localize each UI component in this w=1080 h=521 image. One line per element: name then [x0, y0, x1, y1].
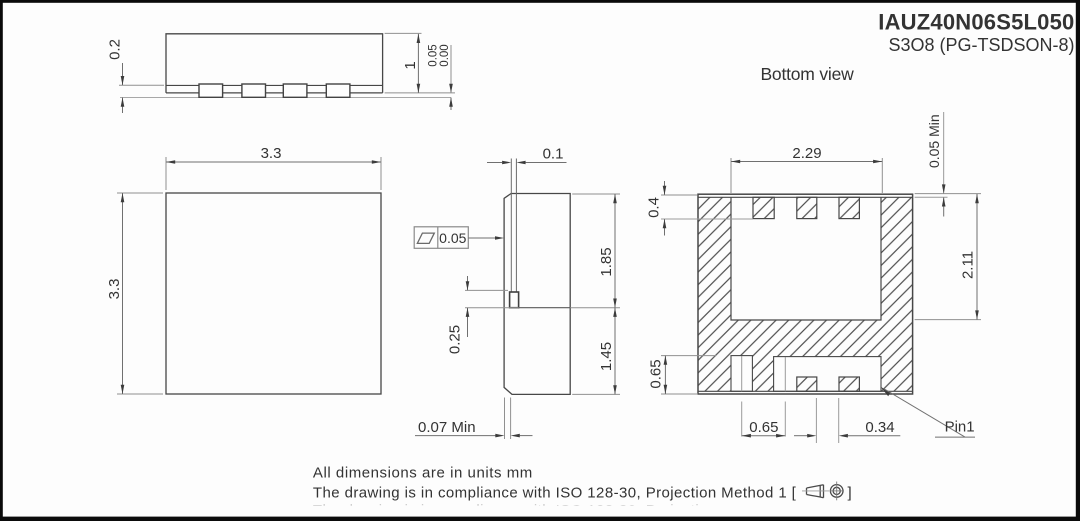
svg-text:0.2: 0.2 — [107, 39, 124, 60]
svg-text:1.45: 1.45 — [598, 342, 615, 371]
svg-text:3.3: 3.3 — [261, 145, 282, 162]
svg-text:1.85: 1.85 — [598, 247, 615, 276]
svg-text:2.11: 2.11 — [960, 251, 977, 279]
svg-text:IAUZ40N06S5L050: IAUZ40N06S5L050 — [878, 9, 1074, 34]
svg-text:0.05: 0.05 — [439, 230, 466, 246]
svg-text:0.07 Min: 0.07 Min — [418, 419, 476, 436]
svg-text:0.34: 0.34 — [865, 419, 894, 436]
svg-text:]: ] — [848, 485, 852, 502]
svg-text:0.25: 0.25 — [447, 325, 464, 354]
svg-text:0.05: 0.05 — [428, 44, 440, 66]
svg-text:0.4: 0.4 — [646, 197, 663, 218]
svg-text:0.00: 0.00 — [439, 44, 451, 66]
svg-text:Bottom view: Bottom view — [760, 64, 854, 84]
svg-text:0.65: 0.65 — [648, 359, 665, 388]
svg-text:0.65: 0.65 — [749, 419, 778, 436]
svg-text:S3O8 (PG-TSDSON-8): S3O8 (PG-TSDSON-8) — [888, 35, 1074, 55]
svg-text:0.05 Min: 0.05 Min — [926, 114, 942, 168]
svg-text:1: 1 — [402, 61, 419, 69]
svg-text:All dimensions are in units mm: All dimensions are in units mm — [313, 465, 533, 482]
svg-text:Pin1: Pin1 — [945, 419, 975, 436]
svg-text:2.29: 2.29 — [792, 145, 821, 162]
svg-text:The drawing is in compliance w: The drawing is in compliance with ISO 12… — [313, 485, 797, 502]
svg-text:3.3: 3.3 — [106, 279, 123, 300]
svg-text:0.1: 0.1 — [543, 146, 564, 163]
